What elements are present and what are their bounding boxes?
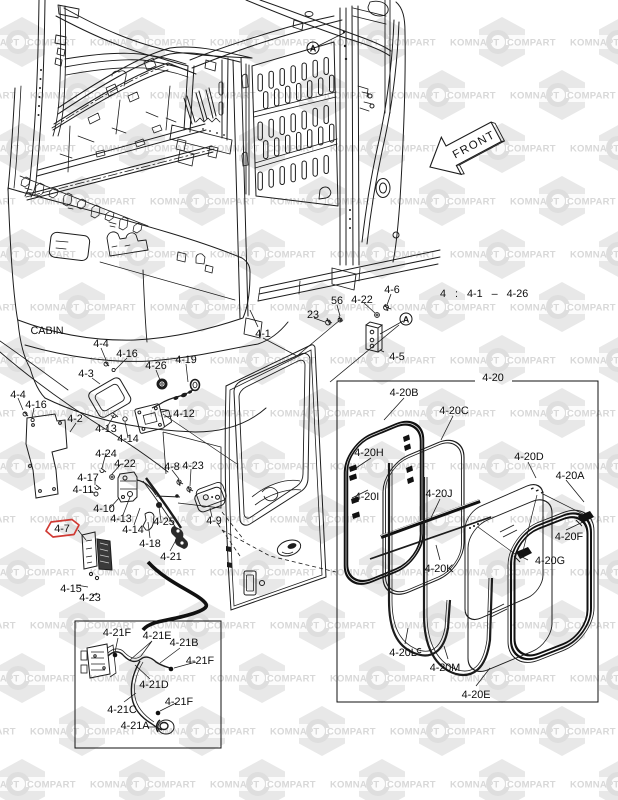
svg-text:4-9: 4-9 <box>206 515 222 527</box>
svg-text:4-23: 4-23 <box>182 460 204 472</box>
svg-text:4-21C: 4-21C <box>107 704 137 716</box>
svg-text:4-20F: 4-20F <box>555 531 584 543</box>
svg-text:4-20G: 4-20G <box>535 555 565 567</box>
svg-text:4-20M: 4-20M <box>430 662 461 674</box>
svg-text:4-12: 4-12 <box>173 408 195 420</box>
svg-text:4-20C: 4-20C <box>439 405 469 417</box>
svg-text:4-21A: 4-21A <box>121 720 151 732</box>
svg-text:4-20: 4-20 <box>482 372 504 384</box>
svg-text:4-4: 4-4 <box>93 338 109 350</box>
svg-text:4-4: 4-4 <box>10 389 26 401</box>
svg-text:4-25: 4-25 <box>153 516 175 528</box>
svg-text:4-20H: 4-20H <box>354 447 383 459</box>
svg-text:4-14: 4-14 <box>122 524 144 536</box>
svg-text:A: A <box>310 44 317 54</box>
svg-text:4-8: 4-8 <box>164 461 180 473</box>
svg-text:4-20K: 4-20K <box>425 563 455 575</box>
svg-text:4-14: 4-14 <box>117 433 139 445</box>
svg-text:4-21F: 4-21F <box>186 655 215 667</box>
svg-text:4 : 4-1 – 4-26: 4 : 4-1 – 4-26 <box>440 288 528 300</box>
svg-text:4-20A: 4-20A <box>556 470 586 482</box>
svg-text:CABIN: CABIN <box>31 325 64 337</box>
svg-text:4-1: 4-1 <box>255 328 271 340</box>
svg-text:4-3: 4-3 <box>78 368 94 380</box>
svg-text:4-20I: 4-20I <box>355 491 380 503</box>
svg-text:4-26: 4-26 <box>145 360 167 372</box>
svg-text:4-21E: 4-21E <box>143 630 172 642</box>
svg-text:4-21D: 4-21D <box>139 679 169 691</box>
svg-text:23: 23 <box>307 309 319 321</box>
svg-text:4-20B: 4-20B <box>390 387 419 399</box>
svg-text:4-17: 4-17 <box>77 472 99 484</box>
svg-text:4-18: 4-18 <box>139 538 161 550</box>
svg-text:4-16: 4-16 <box>25 399 47 411</box>
svg-text:4-16: 4-16 <box>116 348 138 360</box>
svg-text:4-11: 4-11 <box>73 484 94 496</box>
svg-text:4-21F: 4-21F <box>103 627 132 639</box>
svg-text:56: 56 <box>331 295 343 307</box>
svg-text:4-20D: 4-20D <box>514 451 544 463</box>
svg-text:4-19: 4-19 <box>175 354 197 366</box>
svg-text:4-20L: 4-20L <box>389 647 417 659</box>
svg-text:4-13: 4-13 <box>95 423 117 435</box>
svg-text:4-21B: 4-21B <box>170 637 199 649</box>
svg-text:4-22: 4-22 <box>114 458 136 470</box>
svg-text:A: A <box>403 315 410 325</box>
svg-text:4-23: 4-23 <box>79 592 101 604</box>
svg-text:4-20E: 4-20E <box>462 689 491 701</box>
svg-text:4-20J: 4-20J <box>425 488 452 500</box>
svg-text:4-21F: 4-21F <box>165 696 194 708</box>
svg-text:4-6: 4-6 <box>384 284 400 296</box>
svg-text:4-22: 4-22 <box>351 294 373 306</box>
svg-text:4-2: 4-2 <box>67 413 83 425</box>
svg-text:4-7: 4-7 <box>54 523 70 535</box>
svg-text:4-21: 4-21 <box>160 551 182 563</box>
svg-text:4-5: 4-5 <box>389 351 405 363</box>
